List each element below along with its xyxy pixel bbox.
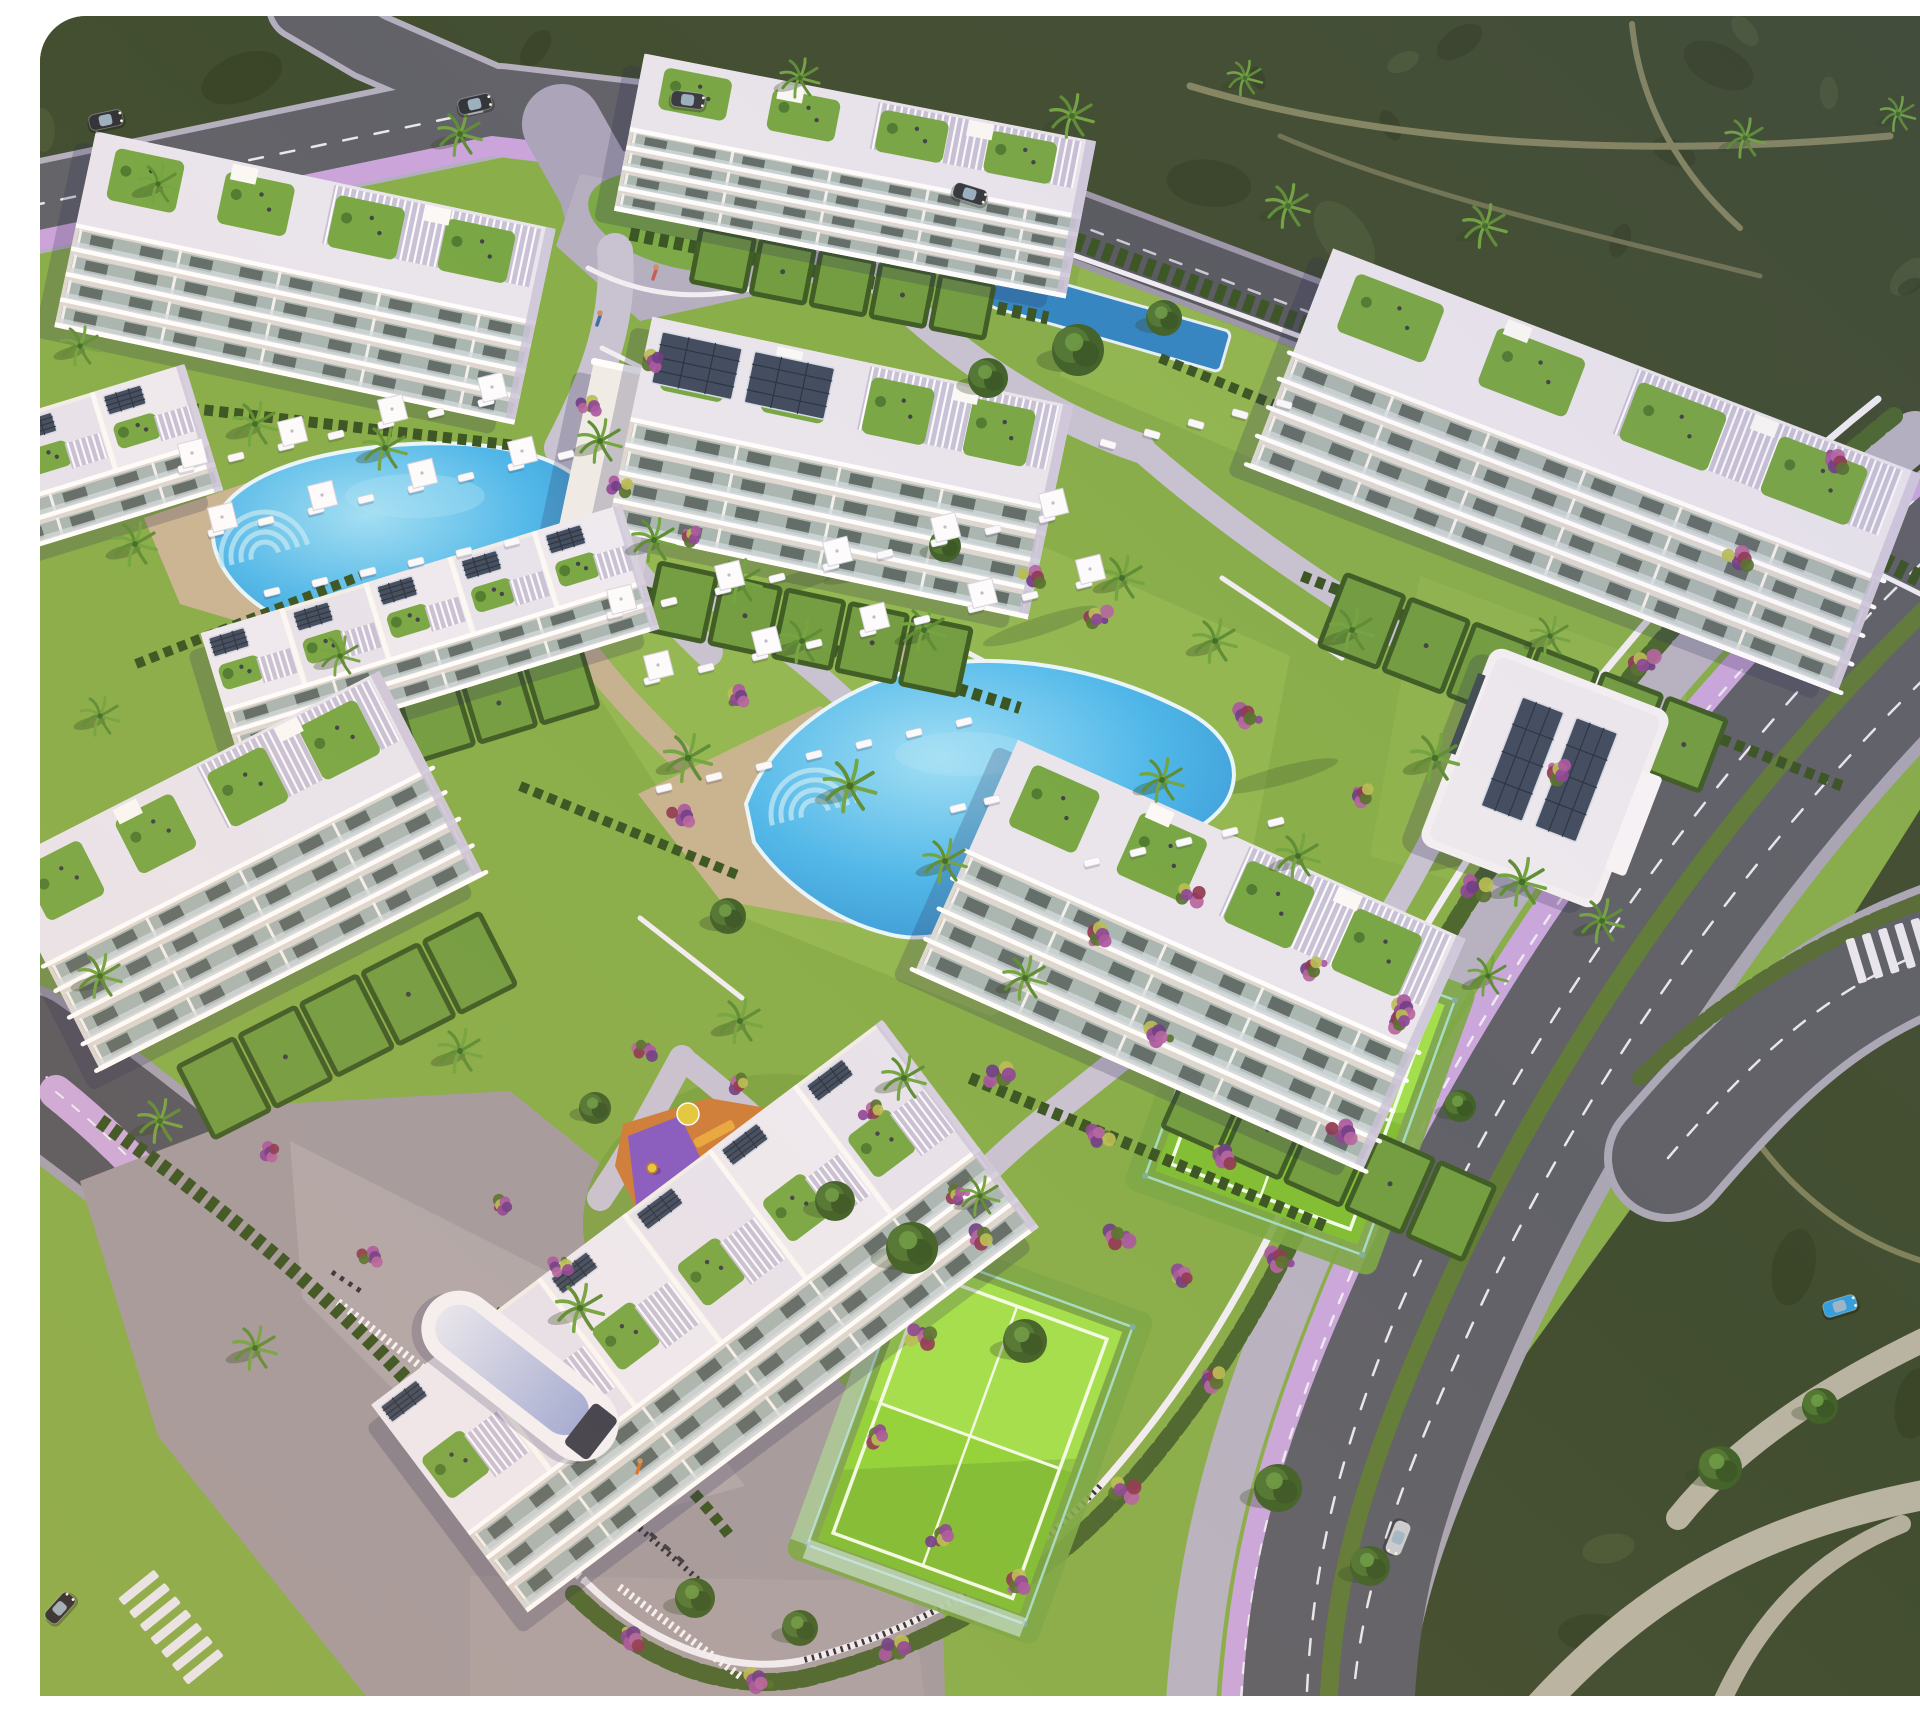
layer-fx (40, 16, 1920, 1696)
light-overlay (40, 16, 1920, 1696)
scene-svg (40, 16, 1920, 1696)
aerial-masterplan-render (40, 16, 1920, 1696)
